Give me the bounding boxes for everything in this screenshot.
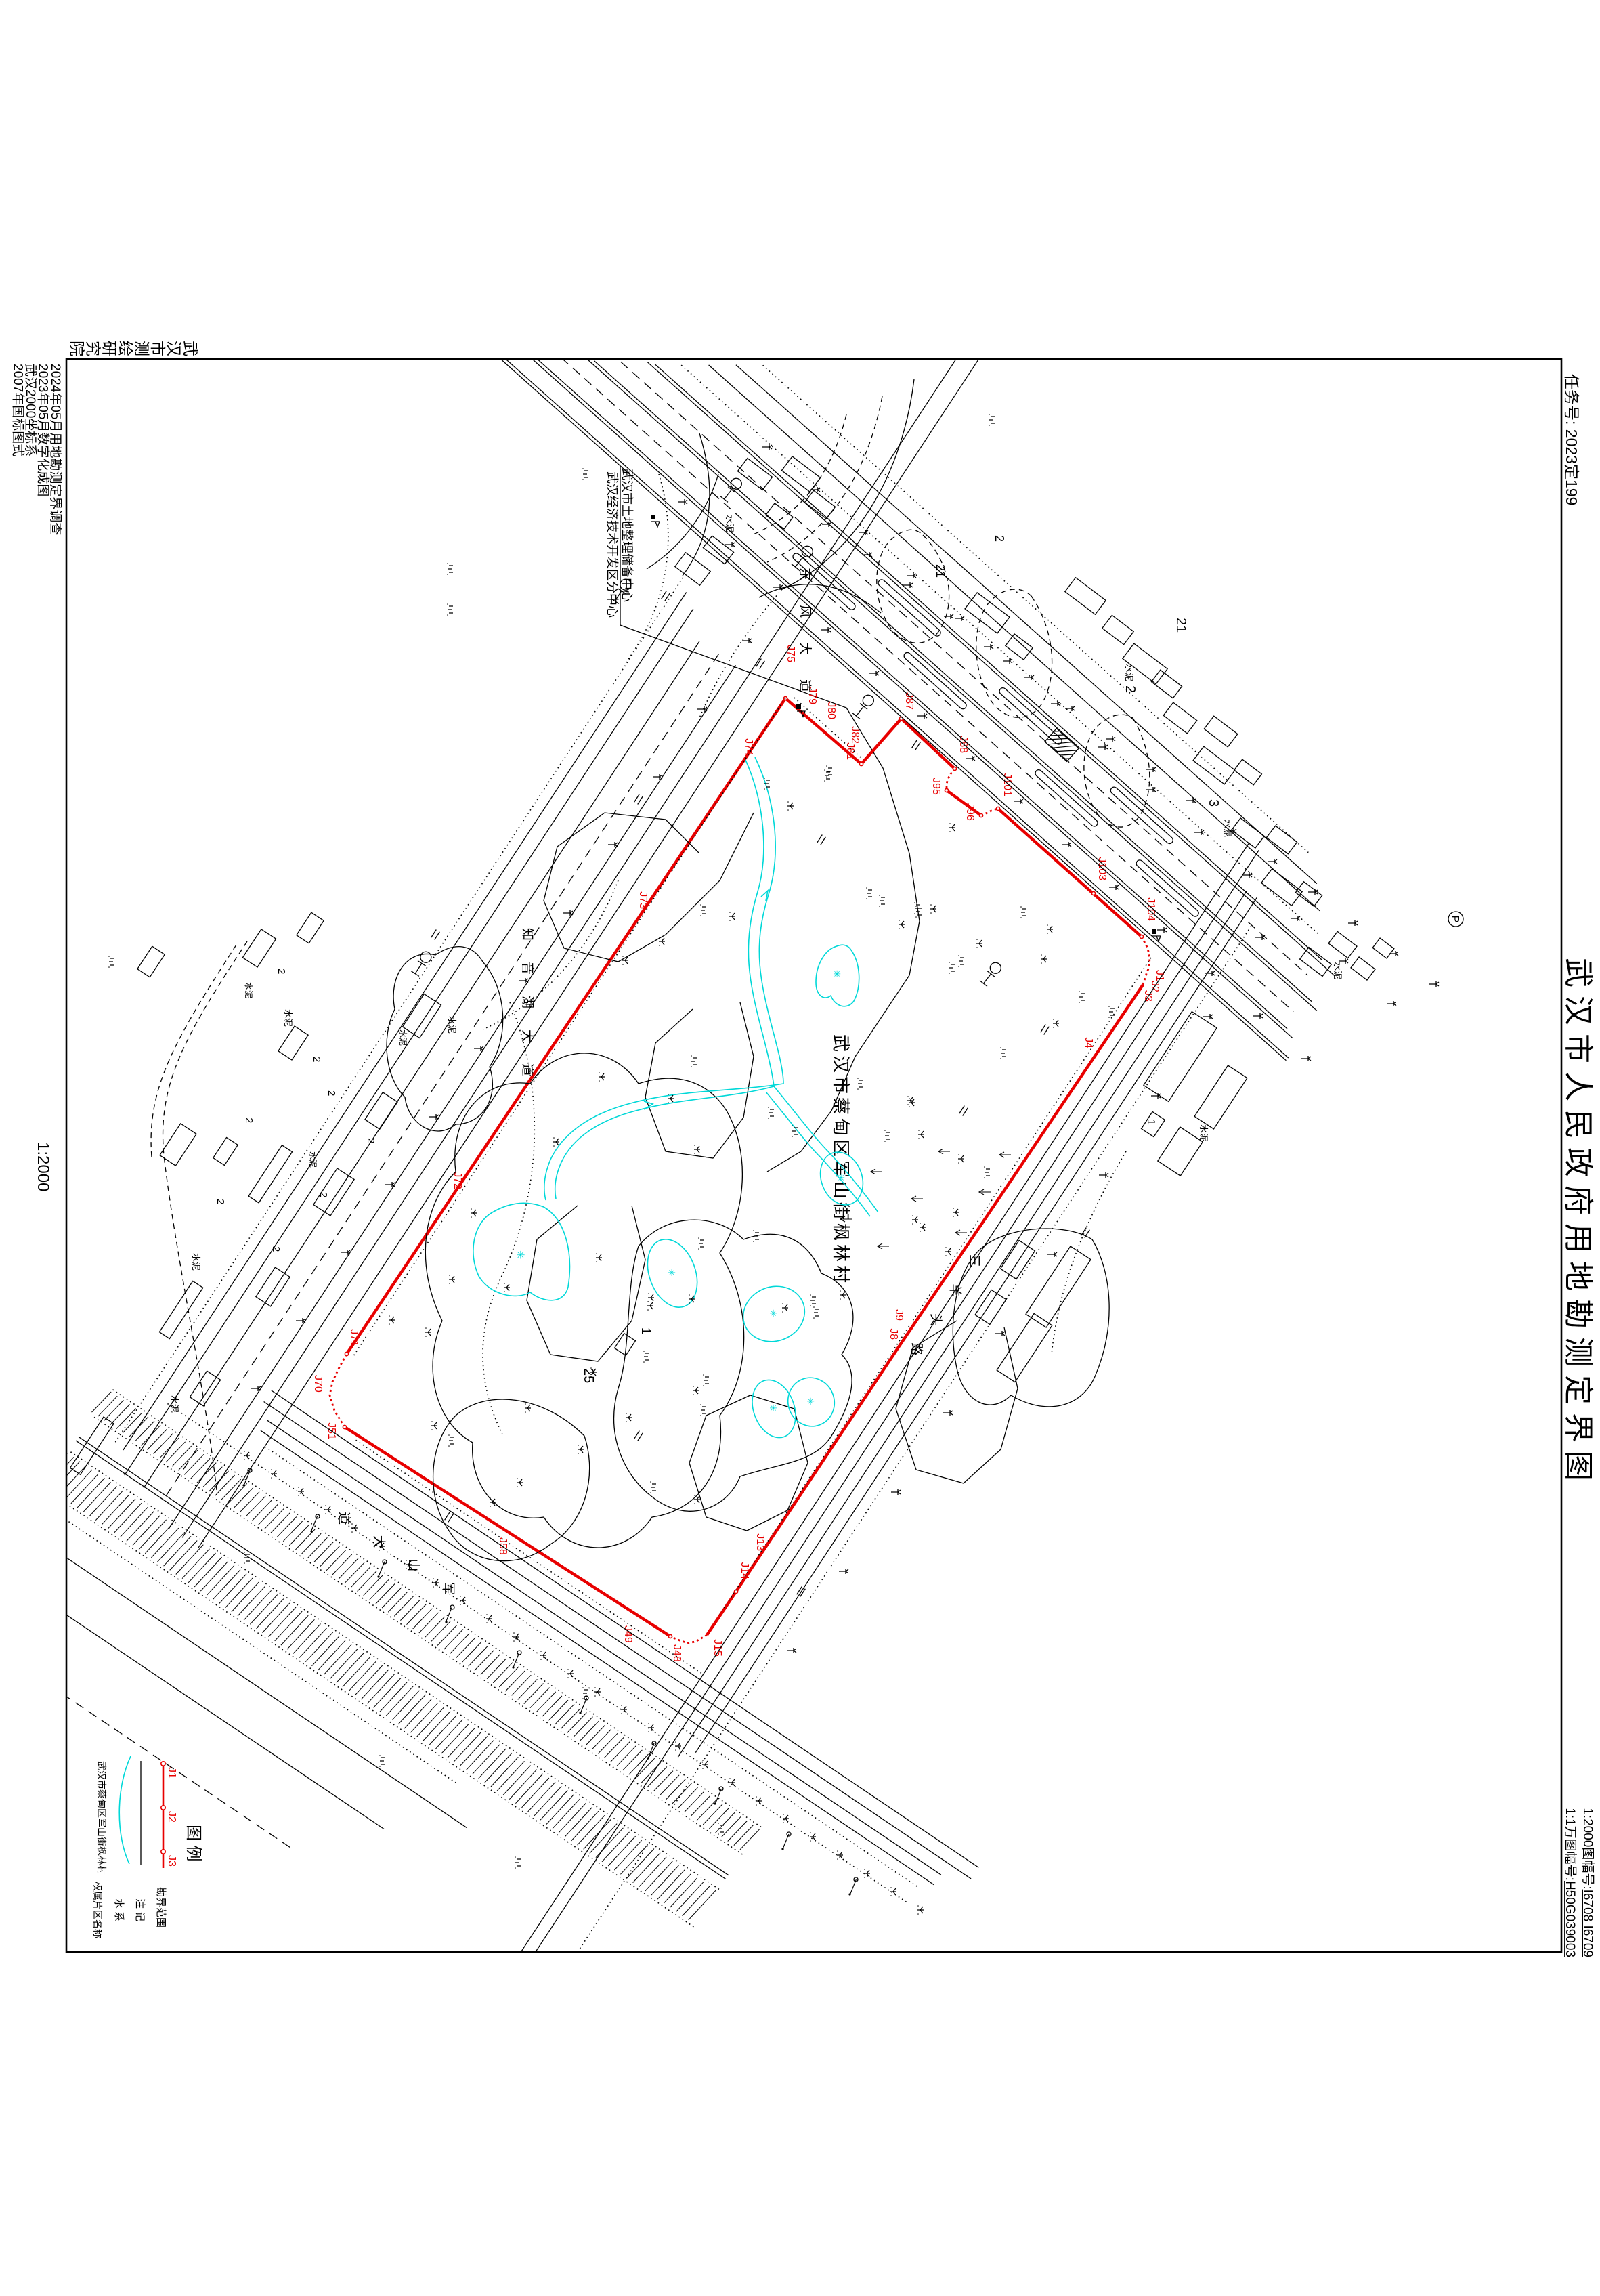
svg-text:武: 武 [181, 341, 199, 356]
svg-text:✳: ✳ [514, 1250, 525, 1259]
svg-text:J1: J1 [166, 1767, 177, 1779]
svg-text:勘界范围: 勘界范围 [155, 1887, 167, 1928]
svg-text:1:2000图幅号:I6708 I6709: 1:2000图幅号:I6708 I6709 [1580, 1808, 1595, 1957]
svg-text:权属片区名称: 权属片区名称 [92, 1882, 103, 1938]
svg-text:大: 大 [798, 642, 813, 655]
svg-text:J70: J70 [312, 1375, 324, 1393]
svg-text:✳: ✳ [768, 1404, 779, 1412]
svg-text:✳: ✳ [805, 1397, 816, 1405]
svg-text:水泥: 水泥 [725, 515, 735, 532]
svg-text:1: 1 [639, 1327, 653, 1334]
svg-text:院: 院 [68, 341, 86, 356]
svg-text:✳: ✳ [836, 1174, 846, 1182]
svg-text:武汉经济技术开发区分中心: 武汉经济技术开发区分中心 [605, 471, 619, 618]
svg-text:1: 1 [1145, 1119, 1156, 1125]
svg-text:J48: J48 [671, 1644, 683, 1662]
svg-text:J9: J9 [893, 1309, 905, 1321]
svg-text:J13: J13 [754, 1533, 766, 1551]
svg-text:汉: 汉 [165, 341, 183, 356]
svg-text:道: 道 [798, 679, 813, 692]
svg-text:水泥: 水泥 [1333, 962, 1343, 979]
svg-text:J3: J3 [1142, 990, 1154, 1002]
svg-text:2007年国标图式: 2007年国标图式 [11, 364, 26, 456]
svg-text:P: P [1449, 916, 1461, 923]
svg-text:任务号: 2023定199: 任务号: 2023定199 [1563, 374, 1580, 505]
svg-text:水泥: 水泥 [169, 1395, 179, 1413]
svg-text:水泥: 水泥 [1222, 820, 1232, 837]
svg-text:知: 知 [520, 928, 535, 941]
svg-text:水泥: 水泥 [398, 1029, 408, 1046]
svg-text:✳: ✳ [666, 1269, 677, 1277]
svg-text:水泥: 水泥 [283, 1009, 293, 1027]
svg-text:✳: ✳ [768, 1309, 779, 1317]
svg-text:水泥: 水泥 [191, 1253, 201, 1271]
svg-text:J104: J104 [1145, 897, 1156, 921]
svg-text:绘: 绘 [116, 341, 134, 356]
svg-text:2: 2 [993, 535, 1006, 542]
svg-text:J8: J8 [888, 1328, 899, 1340]
svg-text:羊: 羊 [948, 1284, 963, 1297]
svg-text:J95: J95 [930, 778, 942, 795]
svg-text:21: 21 [1173, 618, 1188, 633]
svg-text:武汉市人民政府用地勘测定界图: 武汉市人民政府用地勘测定界图 [1561, 958, 1595, 1489]
svg-text:2: 2 [276, 969, 287, 974]
svg-text:J4: J4 [1083, 1037, 1094, 1048]
svg-text:J101: J101 [1001, 773, 1013, 796]
svg-text:2: 2 [311, 1057, 322, 1062]
svg-text:湖: 湖 [520, 996, 535, 1008]
svg-text:道: 道 [520, 1063, 535, 1076]
svg-text:J14: J14 [739, 1562, 750, 1579]
svg-text:头: 头 [928, 1313, 943, 1326]
svg-text:水泥: 水泥 [1198, 1124, 1209, 1142]
svg-text:2: 2 [318, 1192, 329, 1197]
svg-text:注 记: 注 记 [134, 1898, 146, 1921]
svg-text:军: 军 [441, 1582, 455, 1595]
svg-text:2024年05月用地勘测定界调查: 2024年05月用地勘测定界调查 [48, 364, 63, 535]
svg-text:2023年05月数字化成图: 2023年05月数字化成图 [36, 364, 51, 496]
svg-text:市: 市 [149, 341, 167, 356]
svg-text:水泥: 水泥 [244, 982, 253, 998]
svg-text:2: 2 [243, 1118, 255, 1123]
svg-text:图 例: 图 例 [184, 1825, 202, 1862]
svg-text:3: 3 [1206, 799, 1221, 807]
svg-text:J3: J3 [166, 1855, 177, 1867]
svg-text:1:1万图幅号:H50G039003: 1:1万图幅号:H50G039003 [1563, 1808, 1578, 1957]
svg-text:道: 道 [337, 1512, 351, 1525]
svg-text:究: 究 [85, 341, 102, 356]
svg-text:测: 测 [133, 341, 150, 356]
svg-text:J71: J71 [348, 1329, 360, 1346]
svg-text:武汉市蔡甸区军山街枫林村: 武汉市蔡甸区军山街枫林村 [96, 1761, 107, 1875]
svg-text:东: 东 [798, 568, 813, 580]
svg-text:J82: J82 [849, 726, 861, 744]
svg-text:武汉市土地整理储备中心: 武汉市土地整理储备中心 [620, 468, 634, 602]
svg-text:研: 研 [101, 341, 118, 356]
svg-text:三: 三 [967, 1254, 981, 1267]
svg-text:2: 2 [215, 1199, 226, 1204]
svg-text:J96: J96 [964, 803, 976, 821]
svg-text:J103: J103 [1096, 857, 1108, 880]
svg-text:音: 音 [520, 962, 535, 975]
svg-text:J2: J2 [166, 1811, 177, 1823]
svg-text:2: 2 [365, 1138, 376, 1143]
svg-text:J15: J15 [712, 1639, 723, 1657]
svg-text:21: 21 [934, 564, 947, 578]
svg-text:2: 2 [326, 1090, 337, 1096]
svg-text:水泥: 水泥 [308, 1151, 318, 1168]
svg-text:水 系: 水 系 [113, 1898, 125, 1921]
svg-text:J73: J73 [637, 891, 649, 909]
svg-text:J80: J80 [825, 702, 837, 719]
svg-text:J75: J75 [785, 645, 796, 662]
svg-text:1:2000: 1:2000 [34, 1142, 52, 1191]
svg-text:大: 大 [520, 1029, 535, 1042]
svg-text:水泥: 水泥 [447, 1016, 457, 1034]
svg-text:2: 2 [1123, 685, 1138, 693]
svg-text:风: 风 [798, 605, 812, 618]
svg-text:路: 路 [909, 1342, 924, 1355]
svg-text:水泥: 水泥 [1124, 664, 1134, 681]
svg-text:2: 2 [270, 1246, 282, 1252]
svg-text:25: 25 [581, 1368, 596, 1383]
svg-text:✳: ✳ [831, 970, 842, 978]
svg-text:武汉2000坐标系: 武汉2000坐标系 [23, 364, 38, 456]
